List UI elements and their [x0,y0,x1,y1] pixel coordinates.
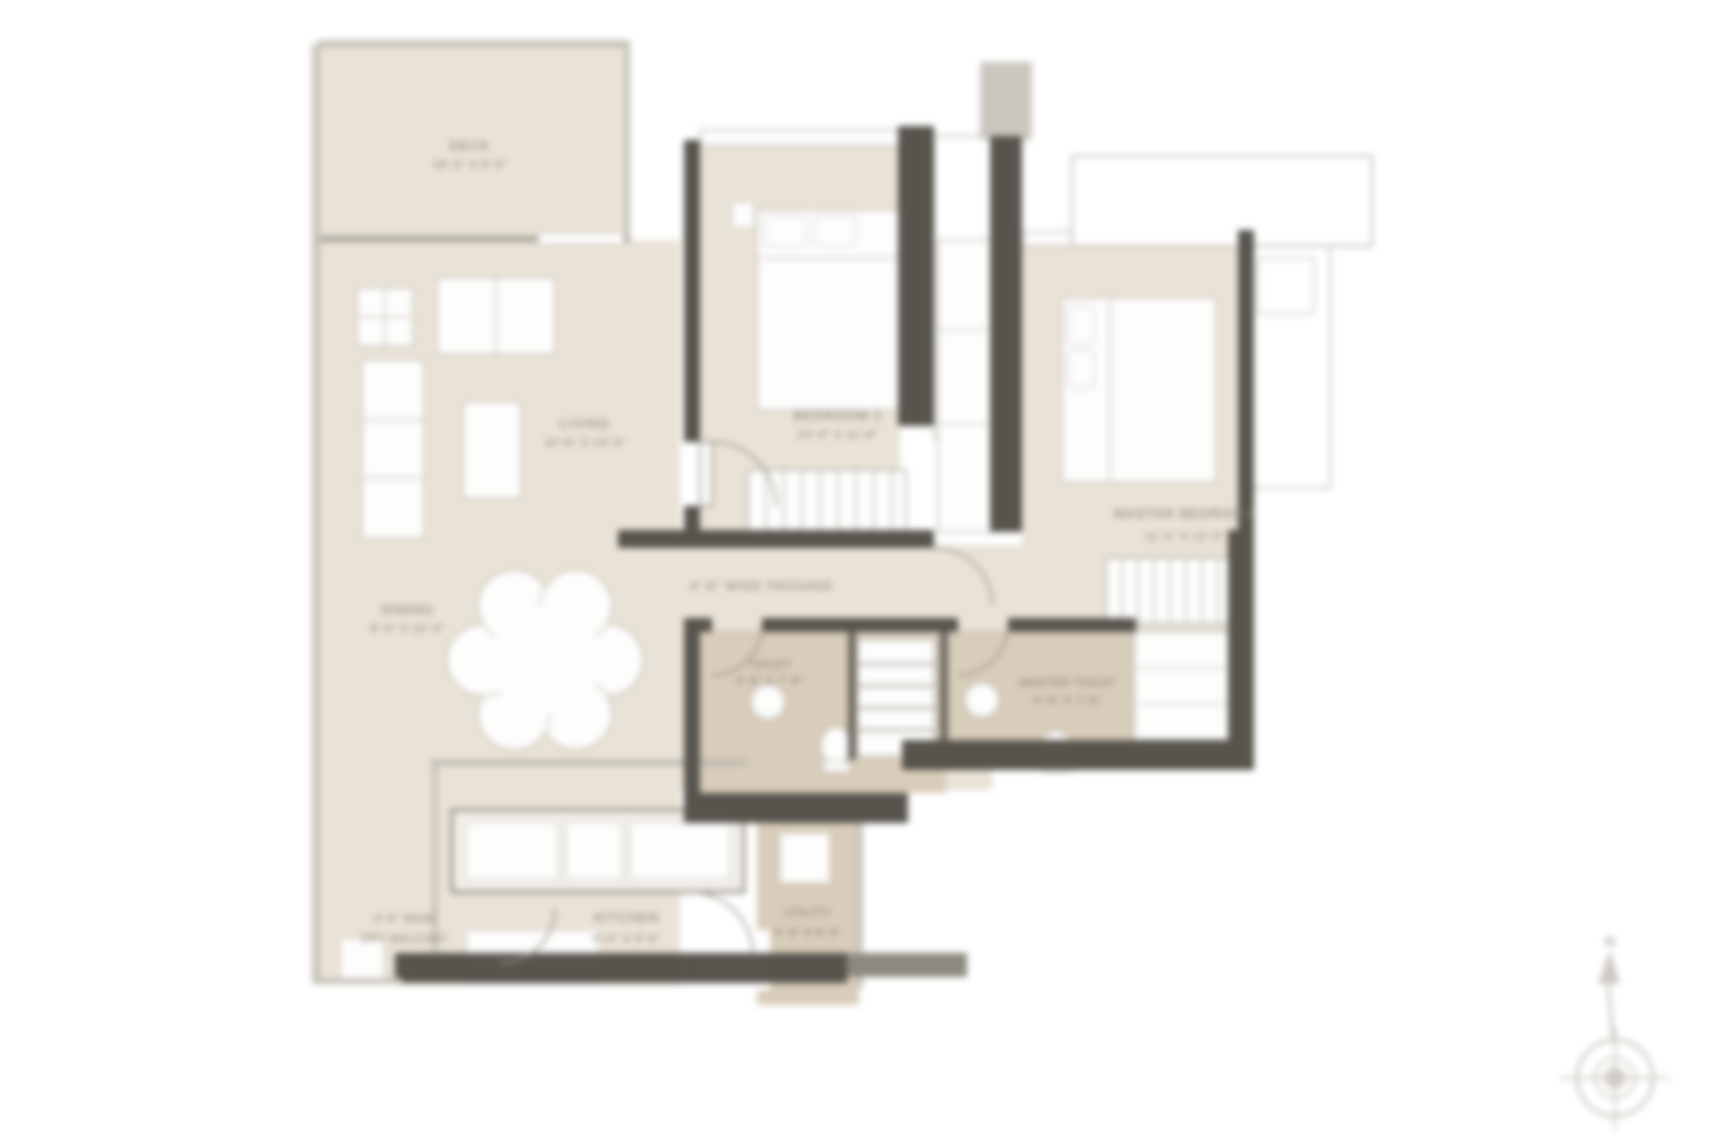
side-sofa [362,360,424,538]
washbasin [965,683,999,717]
floor-plan-page: DECK 18'-0" X 6'-6" LIVING 10'-6" X 13'-… [0,0,1709,1140]
kitchen-label: KITCHEN [594,910,659,925]
bottom-left-edge [312,978,402,984]
deck-wall-top [318,40,630,48]
deck-slider-door [538,233,624,244]
passage-label: 4'-6" WIDE PASSAGE [690,579,834,593]
toilet-wall-bottom-left [688,793,908,823]
living-dims: 10'-6" X 13'-0" [544,437,626,449]
bedroom2-wall-left [684,140,700,442]
toilet-label: TOILET [748,659,791,671]
linen-shelf [858,640,934,756]
dresser [1134,632,1238,740]
bedroom2-door-leaf [700,442,712,506]
bedroom2-dims: 10'-0" X 11'-6" [798,429,879,441]
exterior-wall-bottom-light [847,953,967,977]
toilet-divider [848,632,856,760]
toilet-dims: 4'-6" X 7'-6" [736,675,804,687]
bedroom2-window [700,130,900,146]
bedroom2-label: BEDROOM 2 [794,408,883,423]
master-wall-left [990,136,1022,532]
bedroom2-wall-right [898,126,934,426]
master-toilet-label: MASTER TOILET [1019,677,1116,689]
compass-needle-icon [1608,980,1613,1040]
deck-dims: 18'-0" X 6'-6" [433,159,508,171]
pillow [1068,350,1094,388]
pillow [814,216,856,246]
wardrobe [748,470,906,534]
dining-table-top [490,605,600,715]
floor-plan-canvas: DECK 18'-0" X 6'-6" LIVING 10'-6" X 13'-… [0,0,1709,1140]
living-label: LIVING [560,416,610,431]
master-wall-right [1238,230,1254,530]
ac-ledge [1258,258,1314,314]
pillow [764,216,806,246]
master-bedroom-dims: 11'-0" X 12'-0" [1145,531,1226,543]
bedside-table [732,202,754,228]
dining-dims: 8'-0" X 10'-0" [371,623,446,635]
master-toilet-dims: 5'-0" X 7'-6" [1034,695,1102,707]
master-wall-right-lower [1228,530,1254,770]
washing-machine [780,833,830,883]
dry-balcony-label: 3'-6" WIDE [374,913,436,925]
kitchen-dims: 8'-0" X 9'-6" [593,933,661,945]
coffee-table [463,402,521,498]
exterior-wall-bottom [395,953,847,983]
master-wardrobe-column [938,240,992,532]
exterior-wall-left [312,44,320,984]
compass: N [1560,934,1670,1130]
utility-label: UTILITY [785,907,832,919]
toilet-wall-left [684,618,700,823]
wc-tank [823,762,850,772]
wc [821,727,851,765]
sink-unit [566,822,622,880]
upper-shaft [980,62,1032,140]
toilet-wall-top [1008,618,1136,632]
toilet-wall-top [762,618,958,632]
hob-unit [630,822,730,880]
adjacent-terrace-outline [1072,156,1372,246]
deck-label: DECK [450,138,491,153]
utility-dims: 3'-3" X 6'-0" [774,927,842,939]
dining-label: DINING [382,602,435,617]
master-bedroom-label: MASTER BEDROOM [1114,506,1256,521]
counter-cabinet [466,822,558,880]
dry-balcony-dims: DRY BALCONY [361,933,448,945]
north-label: N [1605,934,1614,949]
north-arrow-icon [1598,950,1620,984]
washbasin [751,685,785,719]
pillow [1068,306,1094,344]
toilet-wall-bottom-right [902,740,1238,770]
passage-wall-top [618,530,934,548]
deck-wall-right [624,44,630,242]
